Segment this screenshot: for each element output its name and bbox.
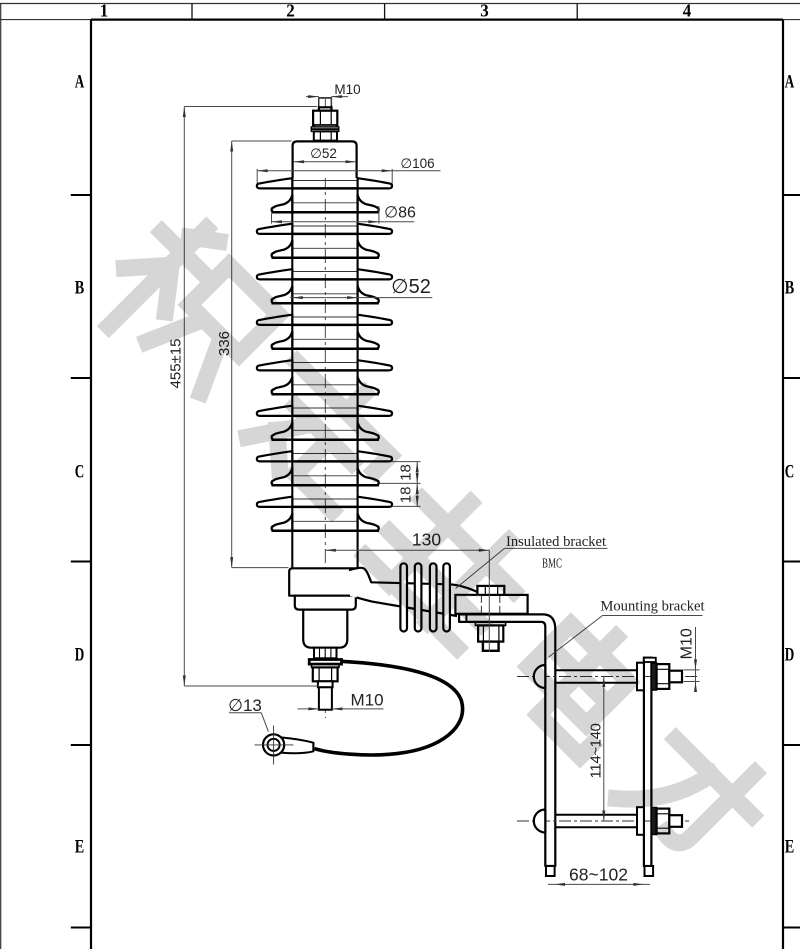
svg-text:A: A	[75, 72, 85, 93]
svg-text:E: E	[785, 837, 795, 858]
svg-text:D: D	[785, 645, 795, 666]
svg-text:M10: M10	[678, 628, 695, 659]
svg-text:C: C	[75, 462, 85, 483]
svg-text:4: 4	[683, 1, 692, 21]
svg-text:M10: M10	[334, 82, 360, 97]
svg-text:D: D	[75, 645, 85, 666]
svg-text:68~102: 68~102	[569, 865, 628, 885]
svg-text:∅13: ∅13	[228, 696, 262, 715]
svg-text:∅106: ∅106	[400, 156, 434, 171]
svg-text:3: 3	[480, 1, 489, 21]
svg-text:E: E	[75, 837, 85, 858]
svg-text:B: B	[75, 278, 85, 299]
svg-text:2: 2	[286, 1, 295, 21]
svg-text:BMC: BMC	[542, 557, 562, 572]
svg-text:∅52: ∅52	[310, 146, 337, 161]
svg-text:∅86: ∅86	[384, 205, 416, 222]
svg-text:18: 18	[397, 464, 414, 481]
svg-text:455±15: 455±15	[168, 339, 185, 389]
svg-text:1: 1	[100, 1, 109, 21]
svg-text:M10: M10	[350, 691, 383, 710]
svg-text:Mounting bracket: Mounting bracket	[600, 599, 704, 615]
svg-text:A: A	[785, 72, 795, 93]
svg-text:C: C	[785, 462, 795, 483]
svg-text:∅52: ∅52	[391, 276, 431, 298]
svg-text:Insulated bracket: Insulated bracket	[506, 534, 606, 550]
svg-text:B: B	[785, 278, 795, 299]
